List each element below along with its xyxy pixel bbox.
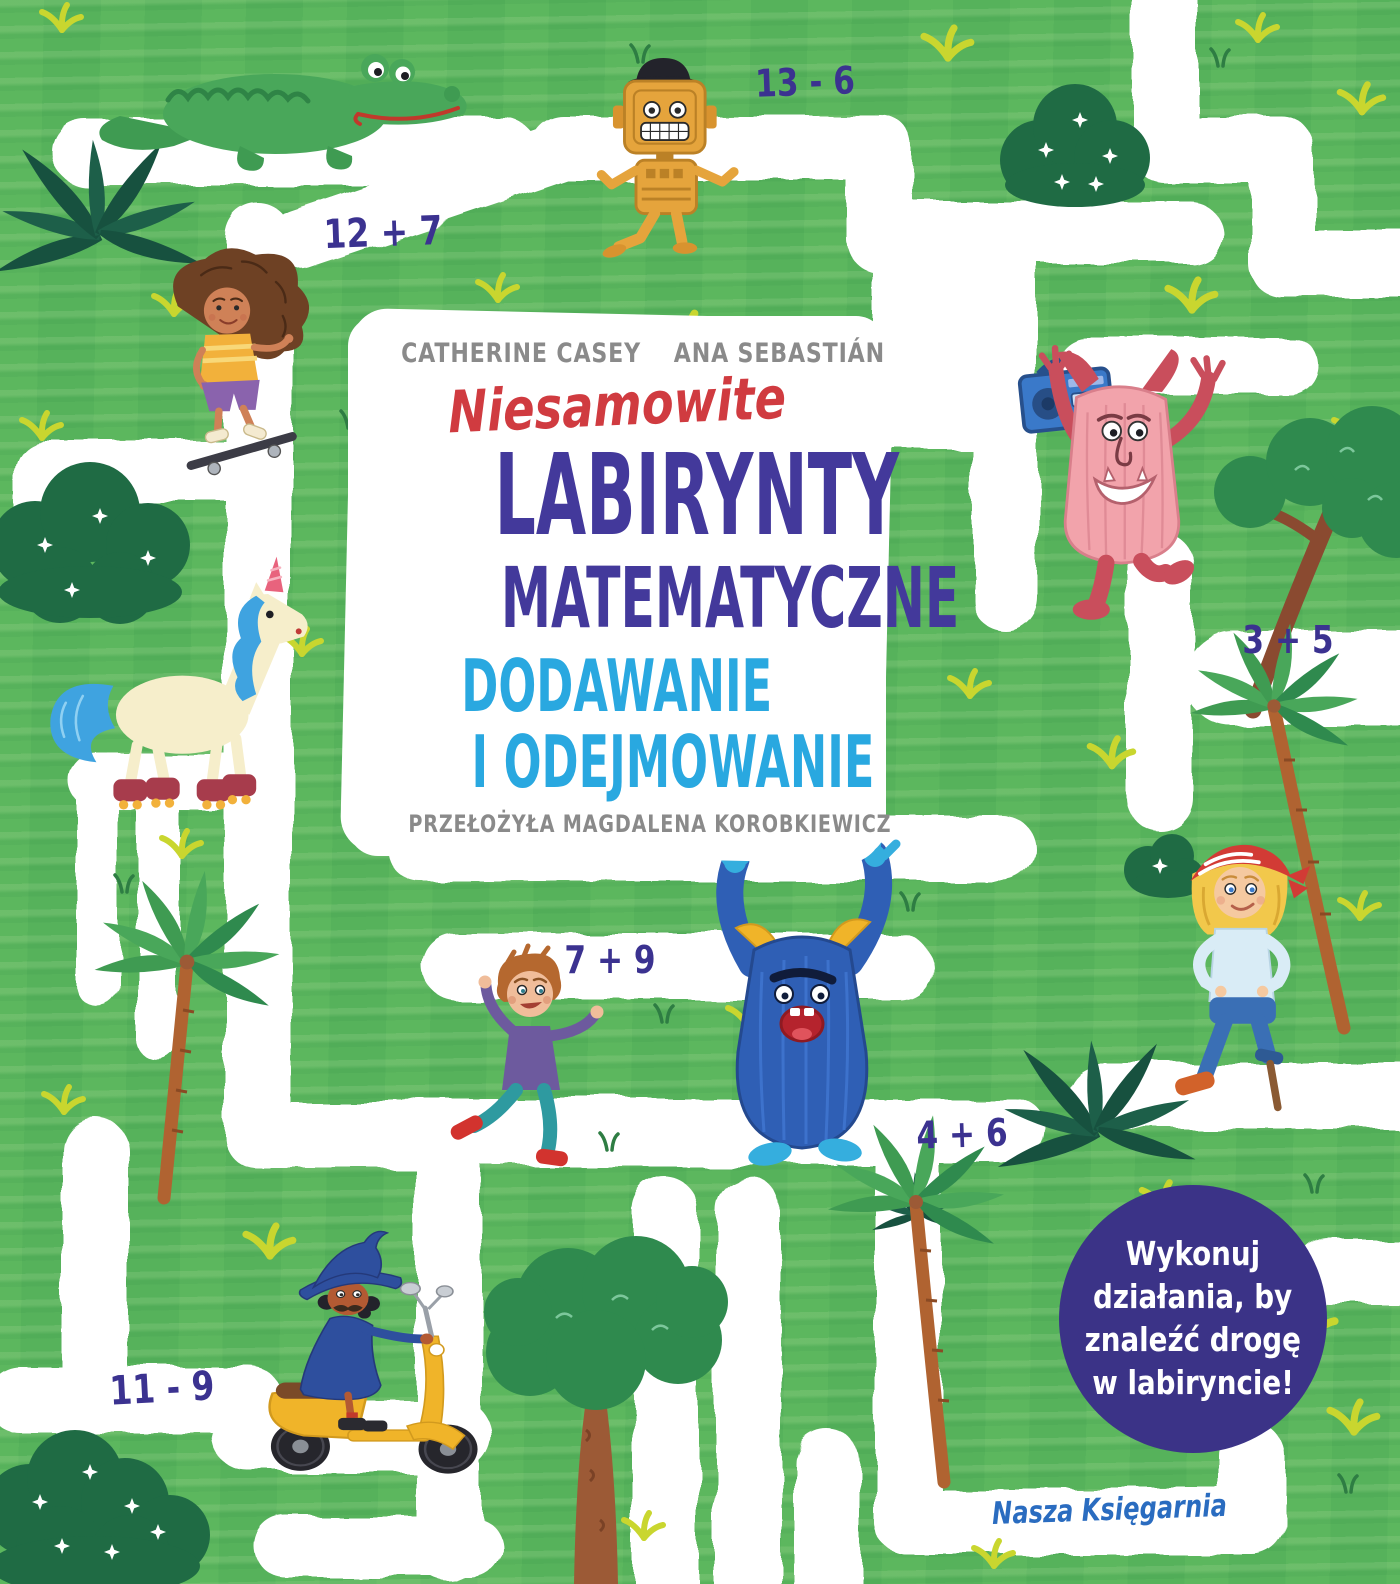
equation-13-6: 13 - 6 [743, 58, 866, 106]
badge-line-4: w labiryncie! [1092, 1362, 1294, 1405]
equation-4-6: 4 + 6 [906, 1110, 1019, 1158]
author-names: CATHERINE CASEYANA SEBASTIÁN [348, 340, 886, 367]
subtitle-line-2: I ODEJMOWANIE [348, 726, 886, 798]
badge-line-2: działania, by [1093, 1276, 1292, 1319]
equation-7-9: 7 + 9 [554, 938, 665, 982]
badge-line-1: Wykonuj [1126, 1233, 1260, 1276]
equation-3-5: 3 + 5 [1232, 618, 1343, 662]
book-cover: CATHERINE CASEYANA SEBASTIÁN Niesamowite… [0, 0, 1400, 1584]
translator-credit: PRZEŁOŻYŁA MAGDALENA KOROBKIEWICZ [348, 812, 886, 836]
promo-badge: Wykonuj działania, by znaleźć drogę w la… [1059, 1185, 1327, 1453]
title-panel: CATHERINE CASEYANA SEBASTIÁN Niesamowite… [348, 316, 886, 856]
equation-11-9: 11 - 9 [97, 1363, 227, 1416]
subtitle-line-1: DODAWANIE [348, 650, 886, 722]
title-line-1: LABIRYNTY [348, 440, 886, 552]
series-title: Niesamowite [348, 376, 886, 434]
title-line-2: MATEMATYCZNE [348, 556, 886, 640]
badge-line-3: znaleźć drogę [1085, 1319, 1301, 1362]
bush-flowering-bottom-left [0, 1430, 210, 1584]
bush-flowering-top-right [1000, 84, 1150, 207]
author-catherine-casey: CATHERINE CASEY [401, 338, 641, 369]
equation-12-7: 12 + 7 [310, 207, 456, 258]
